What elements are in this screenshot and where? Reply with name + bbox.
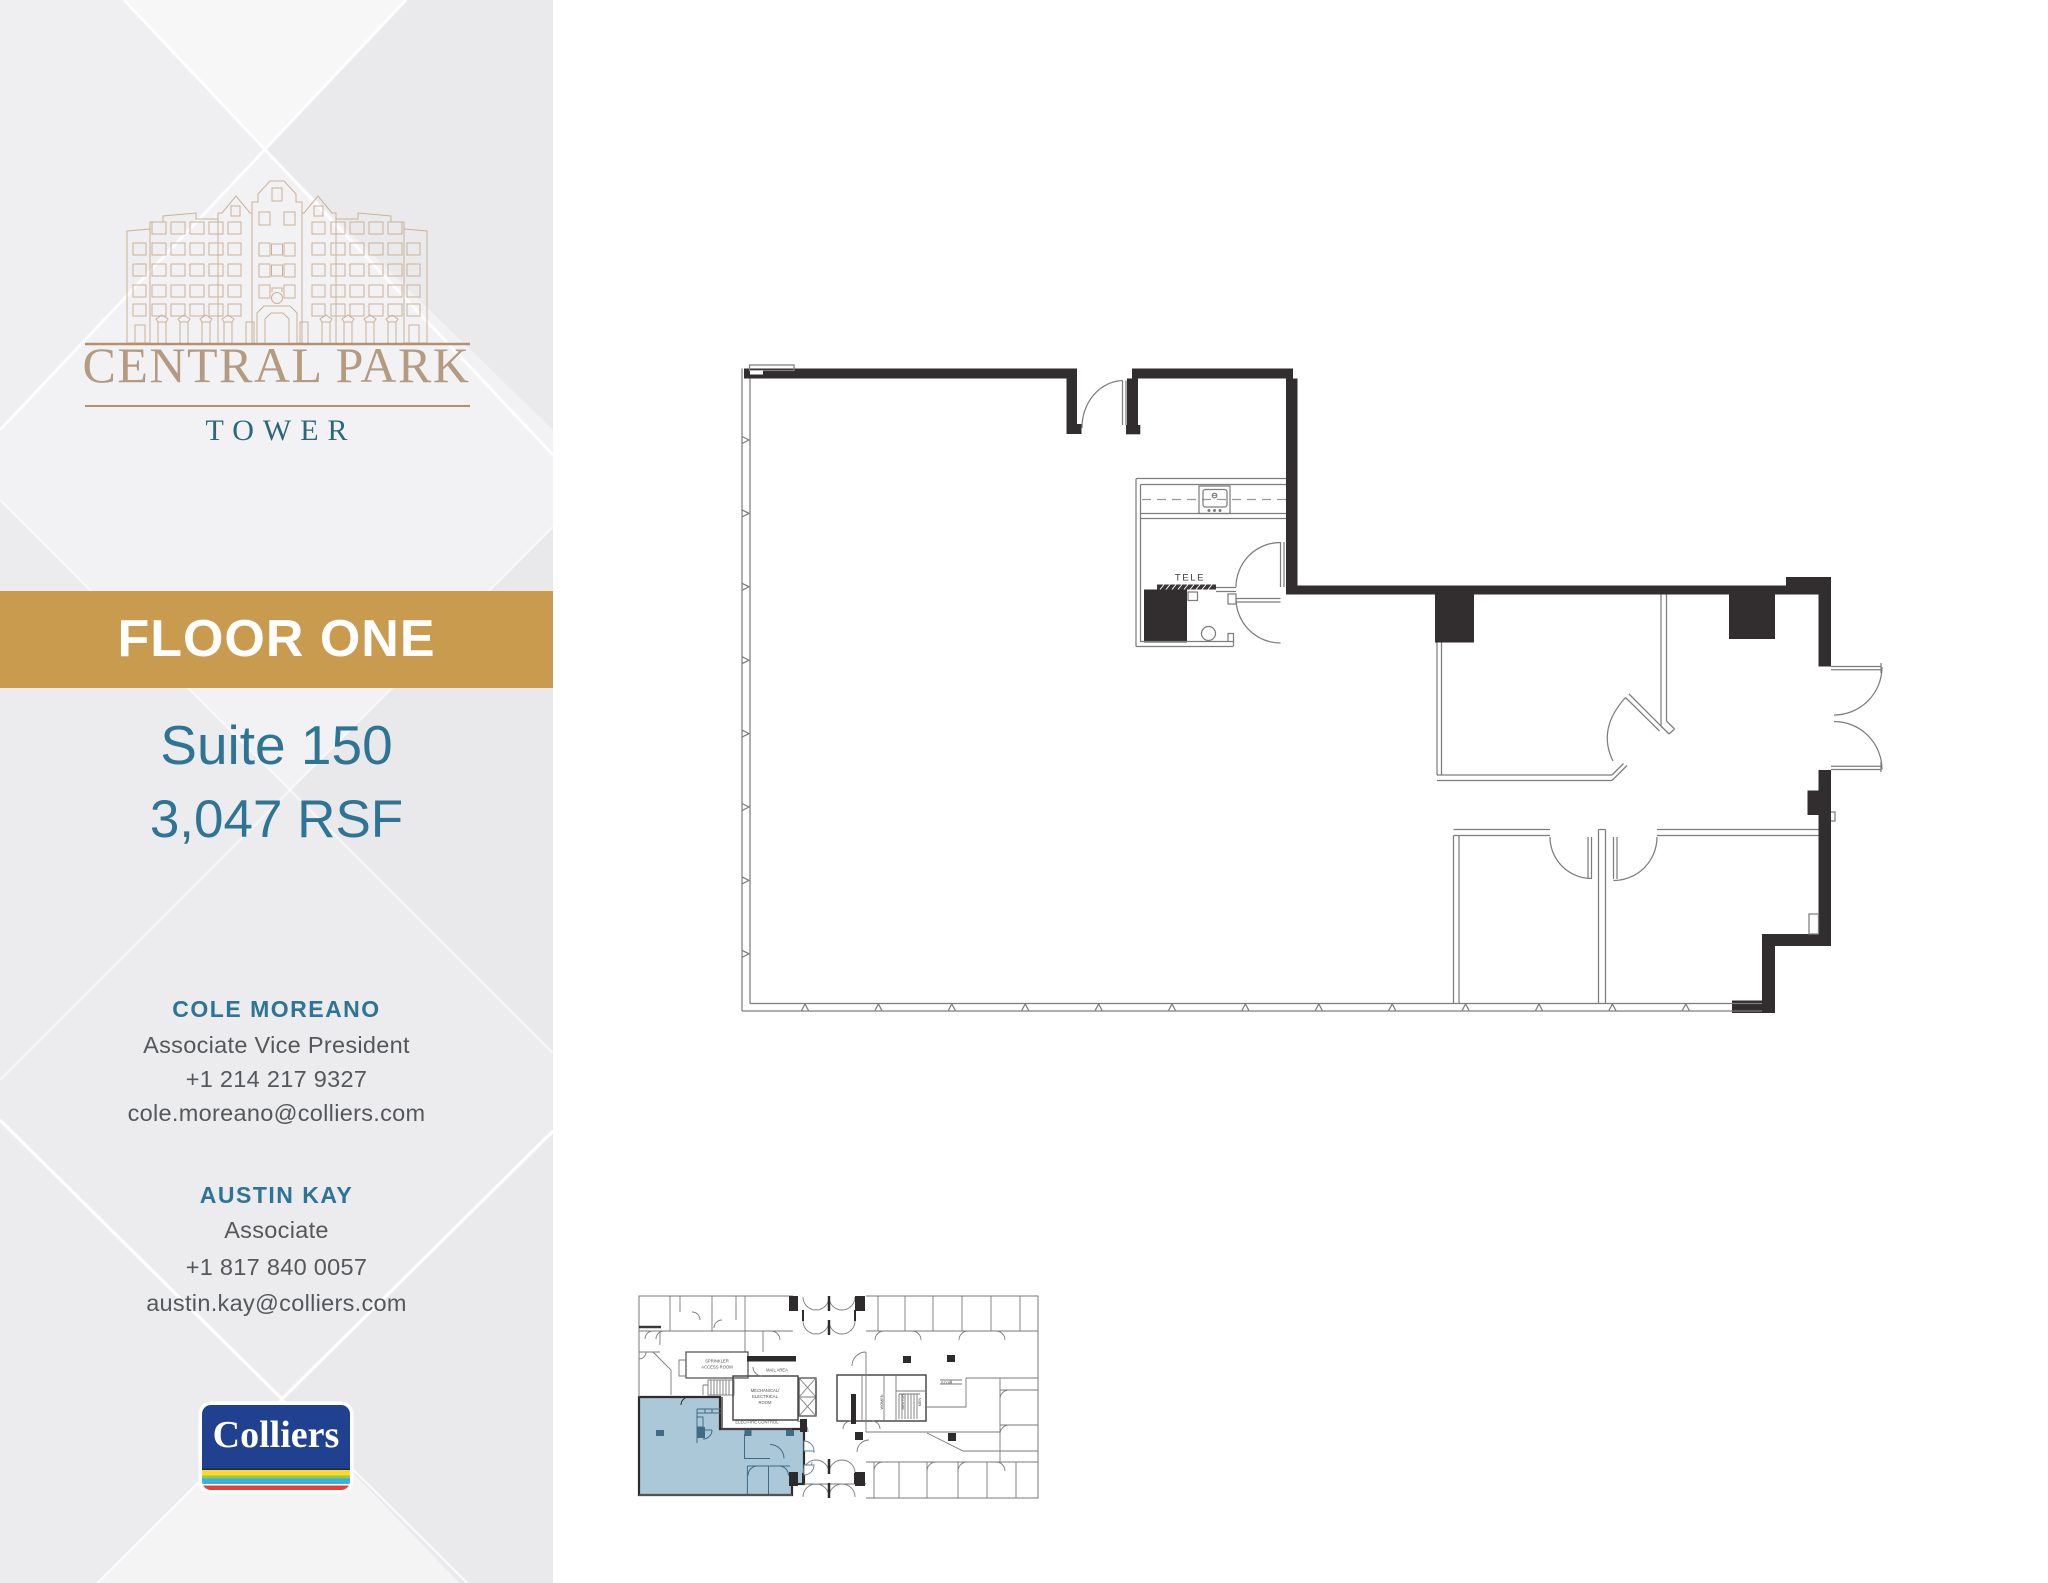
svg-text:SPRINKLER: SPRINKLER [705,1359,729,1364]
svg-text:TELE: TELE [1175,573,1205,584]
svg-text:STOR.: STOR. [941,1380,953,1385]
svg-text:WOMEN: WOMEN [880,1394,884,1409]
svg-text:MEN: MEN [918,1398,922,1407]
svg-text:JANITOR: JANITOR [901,1394,905,1410]
svg-text:ELECTRICAL: ELECTRICAL [752,1394,779,1399]
svg-text:MAIL AREA: MAIL AREA [766,1368,788,1373]
svg-text:ELEC/FIRE CONTROL: ELEC/FIRE CONTROL [735,1420,779,1425]
svg-text:MECHANICAL/: MECHANICAL/ [751,1388,780,1393]
svg-text:ACCESS ROOM: ACCESS ROOM [701,1365,733,1370]
svg-text:ROOM: ROOM [758,1400,772,1405]
